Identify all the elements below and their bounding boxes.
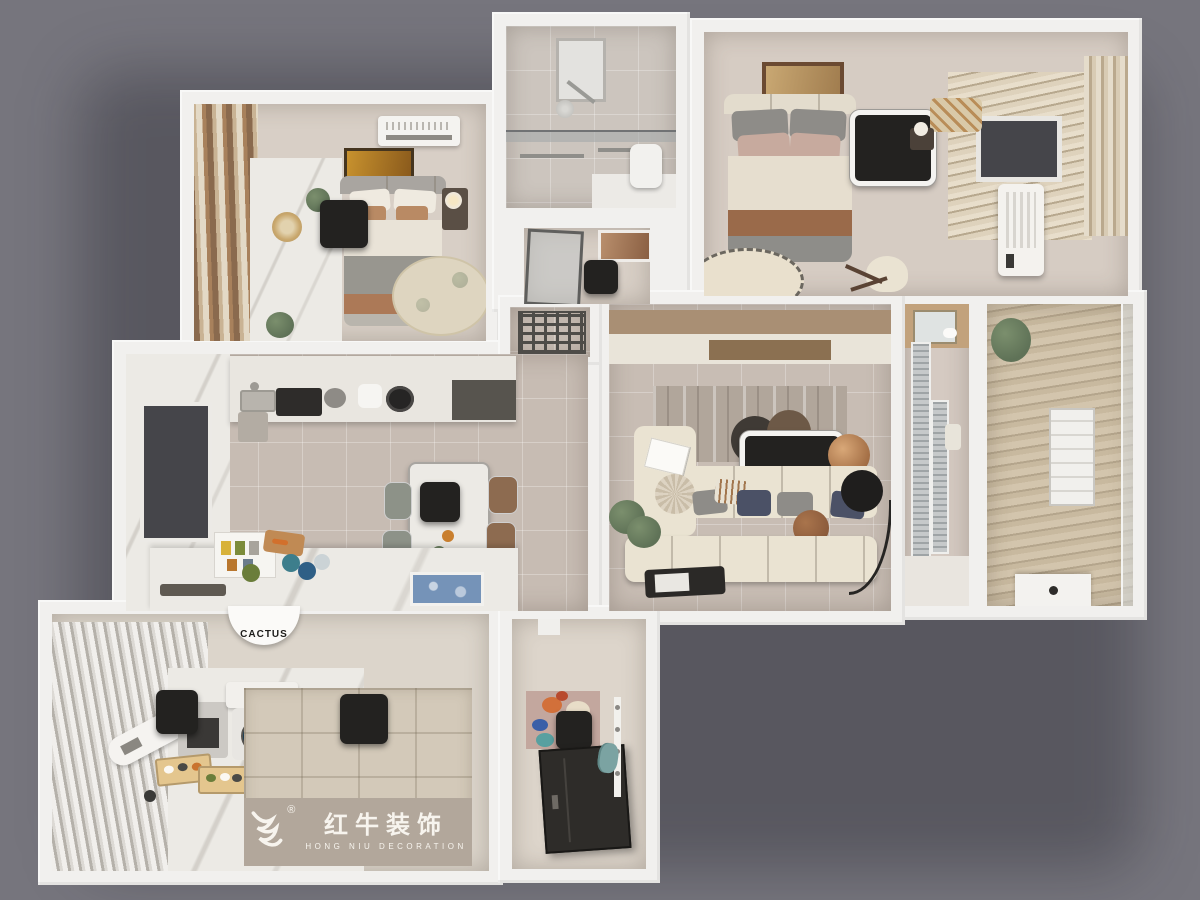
- room-laundry-floor: [524, 228, 650, 304]
- mural-motif: [556, 691, 568, 701]
- dark-counter-section: [452, 380, 516, 420]
- coat-hook: [615, 727, 620, 732]
- fruit-bowl: [442, 530, 454, 542]
- room-balcony-floor: [987, 304, 1133, 606]
- room-bath2-floor: [905, 304, 969, 606]
- jar: [249, 541, 259, 555]
- rice-cooker: [358, 384, 382, 408]
- cooktop: [276, 388, 322, 416]
- logo-english-text: HONG NIU DECORATION: [305, 842, 466, 851]
- blue-artwork-flat: [410, 572, 484, 606]
- masked-box: [156, 690, 198, 734]
- rug-leaf-motif: [416, 298, 430, 312]
- floor-mat: [538, 619, 560, 635]
- sink: [240, 390, 276, 412]
- paper-roll: [943, 328, 957, 338]
- bed: [724, 94, 856, 262]
- chair-seat: [866, 256, 908, 292]
- small-kettle: [144, 790, 156, 802]
- shower-glass-partition: [506, 130, 676, 142]
- food-item: [163, 765, 174, 774]
- cactus-sign-label: CACTUS: [240, 629, 288, 640]
- window-dark-glass: [140, 402, 212, 542]
- shower-floor: [905, 556, 969, 606]
- plate: [298, 562, 316, 580]
- glass-door: [524, 229, 584, 304]
- tv-wall-wood-niche: [709, 340, 831, 360]
- masked-box: [556, 711, 592, 749]
- blanket-brown-stripe: [728, 210, 852, 236]
- cactus-wall-sign: CACTUS: [228, 606, 300, 645]
- window-seat-pillow: [930, 98, 982, 132]
- ac-vents: [386, 122, 452, 130]
- tablet-on-floor: [644, 566, 725, 598]
- ac-unit: [378, 116, 460, 146]
- room-kitchen-floor: [126, 354, 588, 611]
- room-bathroom-floor: [506, 26, 676, 208]
- masked-box: [420, 482, 460, 522]
- carrot: [272, 538, 289, 545]
- kitchen-cabinet: [238, 412, 268, 442]
- cabinet-knob: [1049, 586, 1058, 595]
- kitchen-counter-top: [230, 356, 516, 422]
- mural-motif: [532, 719, 548, 731]
- drying-rack: [1049, 408, 1095, 506]
- utensil-tray: [160, 584, 226, 596]
- room-bedroom1-floor: [194, 104, 486, 341]
- registered-mark: ®: [287, 804, 295, 816]
- bed-sheet: [728, 156, 852, 210]
- window-dark-glass: [976, 116, 1062, 182]
- dining-chair: [384, 482, 412, 520]
- green-bowl: [242, 564, 260, 582]
- ac-grille: [386, 135, 452, 140]
- jar: [235, 541, 245, 555]
- accent-chair: [844, 256, 908, 296]
- ac-cabinet-louvers: [1006, 192, 1036, 248]
- coat-hook: [615, 705, 620, 710]
- wall-art: [598, 230, 650, 262]
- door-panel-line: [563, 758, 571, 842]
- arc-floor-lamp-stem: [849, 500, 891, 595]
- room-master-bedroom-floor: [704, 32, 1128, 296]
- curtain-panel: [1084, 56, 1128, 236]
- jar: [227, 559, 237, 571]
- masked-box: [340, 694, 388, 744]
- faucet: [250, 382, 259, 391]
- door-handle: [552, 795, 559, 809]
- shower-head-icon: [556, 100, 574, 118]
- ac-cabinet: [998, 184, 1044, 276]
- table-lamp: [914, 122, 928, 136]
- food-item: [232, 774, 242, 782]
- floor-grille: [518, 311, 586, 355]
- throw-pillow-navy: [737, 490, 771, 516]
- food-item: [220, 773, 230, 781]
- ac-cabinet-panel: [1006, 254, 1014, 268]
- glass-railing-edge: [1121, 304, 1133, 606]
- potted-plant: [627, 516, 661, 548]
- corridor-floor: [510, 307, 590, 357]
- mural-motif: [536, 733, 554, 747]
- glass-partition-edge: [911, 342, 931, 586]
- watermark-logo-band: ® 红牛装饰 HONG NIU DECORATION: [244, 798, 472, 866]
- black-appliance: [386, 386, 414, 412]
- food-item: [177, 763, 188, 772]
- round-rug: [392, 256, 486, 336]
- coat-hook: [615, 771, 620, 776]
- room-living-floor: [609, 304, 891, 611]
- mat-label: [120, 737, 142, 755]
- dining-chair: [488, 476, 518, 514]
- curtain-panel: [194, 104, 258, 341]
- logo-chinese-text: 红牛装饰: [324, 814, 448, 838]
- frying-pan: [324, 388, 346, 408]
- vanity-mirror: [913, 310, 957, 344]
- glass-partition-edge: [931, 400, 949, 554]
- masked-box: [584, 260, 618, 294]
- sofa: [625, 452, 877, 582]
- potted-plant: [991, 318, 1031, 362]
- towel-bar: [520, 154, 584, 158]
- round-basket-table: [272, 212, 302, 242]
- pleated-round-pillow: [655, 474, 695, 514]
- rug-leaf-motif: [452, 272, 468, 288]
- water-heater: [630, 144, 662, 188]
- bento-tray: [198, 766, 250, 794]
- tv-wall-wood-strip: [609, 310, 891, 334]
- apartment-3d-floorplan-render: CACTUS ®: [0, 0, 1200, 900]
- masked-tv-panel: [320, 200, 368, 248]
- room-entry-floor: [512, 619, 646, 869]
- towel: [945, 424, 961, 450]
- food-item: [206, 774, 216, 782]
- marble-runner: [250, 158, 342, 341]
- logo-text-group: 红牛装饰 HONG NIU DECORATION: [305, 814, 466, 851]
- bull-logo-icon: [249, 811, 285, 853]
- potted-plant: [266, 312, 294, 338]
- balcony-cabinet: [1015, 574, 1091, 606]
- table-lamp: [445, 192, 462, 209]
- jar: [221, 541, 231, 555]
- room-multipurpose-floor: CACTUS ®: [52, 614, 489, 871]
- plate: [314, 554, 330, 570]
- tablet-page: [655, 573, 690, 593]
